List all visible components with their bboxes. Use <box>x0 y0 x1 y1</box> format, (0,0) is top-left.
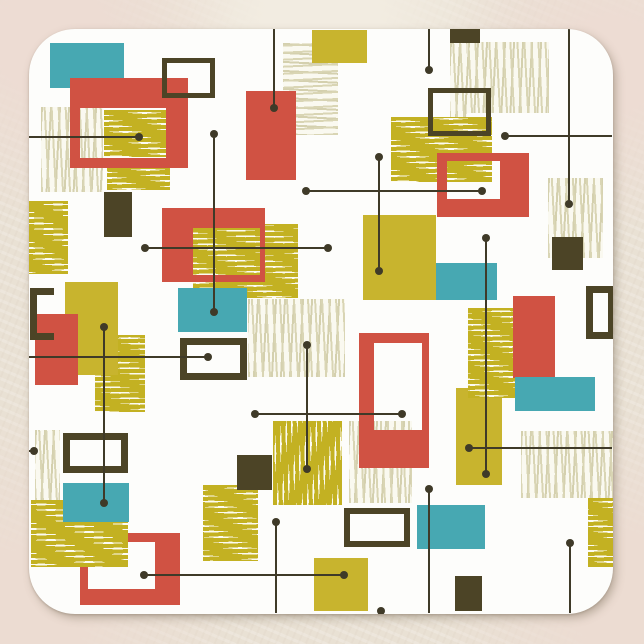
dark-outline-mid-left <box>63 433 128 473</box>
textured-table-background <box>0 0 644 644</box>
mustard-hatch-over-tall <box>468 308 515 398</box>
line-v-mid-a <box>378 157 380 271</box>
teal-rect-right <box>515 377 595 411</box>
line-v-bottom-b <box>428 489 430 613</box>
line-v-center <box>306 345 308 469</box>
red-frame-tall-center <box>359 333 429 468</box>
line-h-mid-a <box>306 190 482 192</box>
dark-outline-center-left <box>180 338 247 380</box>
line-v-mid-b <box>485 238 487 474</box>
pale-hatch-center <box>248 299 345 377</box>
red-rect-right <box>513 296 555 378</box>
line-h-upper-right <box>505 135 612 137</box>
dark-outline-lower-mid <box>344 508 410 547</box>
line-h-left-mid <box>29 356 208 358</box>
mustard-rect-top <box>312 30 367 63</box>
dot-bottom-edge <box>377 607 385 614</box>
line-v-top-a <box>273 29 275 108</box>
mustard-hatch-center-low <box>203 485 258 561</box>
line-v-top-b <box>428 29 430 70</box>
coaster <box>29 29 613 614</box>
dark-square-center <box>237 455 272 490</box>
red-frame-upper-right <box>437 153 529 217</box>
dark-rect-right <box>552 237 583 270</box>
dark-rect-top <box>450 29 480 43</box>
line-v-left-tall <box>213 134 215 312</box>
line-h-right-low <box>469 447 612 449</box>
pale-hatch-bottom-right <box>521 431 613 498</box>
mustard-square-mid <box>363 215 436 300</box>
mustard-hatch-below-frame1 <box>107 167 170 190</box>
line-v-top-c <box>568 29 570 204</box>
mustard-rect-bottom <box>314 558 368 611</box>
line-v-bottom-c <box>569 543 571 613</box>
dark-rect-bottom <box>455 576 482 611</box>
dark-bracket-left <box>30 288 54 340</box>
dark-outline-right-edge <box>586 286 613 339</box>
line-v-left-low <box>103 327 105 503</box>
line-h-bottom <box>144 574 344 576</box>
dark-rect-mid-left <box>104 192 132 237</box>
teal-rect-lower-left <box>63 483 129 522</box>
mustard-hatch-left <box>29 201 68 274</box>
dark-outline-square-upper-mid <box>428 88 491 136</box>
line-h-upper-left <box>29 136 139 138</box>
mustard-hatch-in-red-center <box>193 228 260 275</box>
line-v-bottom-a <box>275 522 277 613</box>
dark-outline-square-top-left <box>162 58 215 98</box>
line-h-center-low <box>255 413 402 415</box>
line-h-mid-b <box>145 247 328 249</box>
mustard-rect-tall <box>456 388 502 485</box>
line-h-left-stub <box>29 450 34 452</box>
teal-rect-mid <box>436 263 497 300</box>
pale-hatch-left-edge <box>35 430 60 503</box>
mustard-hatch-right-edge <box>588 498 613 567</box>
